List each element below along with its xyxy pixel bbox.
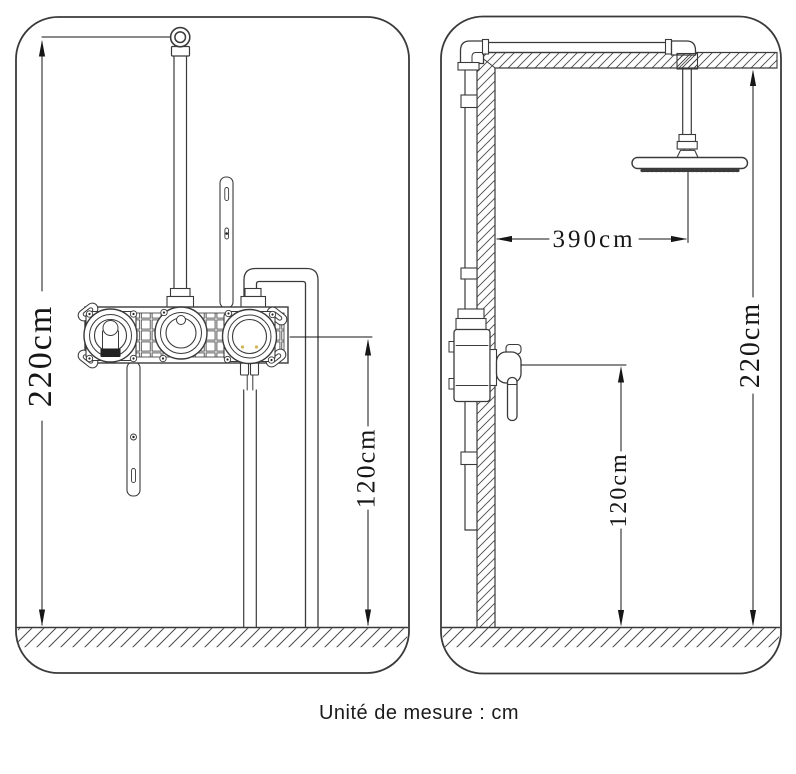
rough-in-valve-plate [76, 301, 289, 370]
diagram-root: 220cm [0, 0, 796, 774]
front-view-panel: 220cm [16, 17, 409, 673]
mounting-strap-lower [127, 362, 140, 496]
right-valve [223, 310, 277, 364]
side-floor-hatch [443, 628, 779, 647]
unit-note: Unité de mesure : cm [42, 702, 796, 725]
ceiling-section-hatch [476, 53, 777, 68]
dimension-label-side-valve-height: 120cm [606, 452, 632, 527]
left-valve [84, 309, 137, 362]
side-view-panel: 390cm 120cm [441, 17, 781, 674]
valve-handle-lever [508, 378, 518, 421]
dimension-label-front-valve-height: 120cm [352, 428, 381, 509]
dimension-label-side-height: 220cm [735, 302, 766, 388]
installation-diagram-canvas: 220cm [0, 0, 796, 746]
dimension-label-side-distance: 390cm [552, 226, 635, 253]
dimension-label-front-height: 220cm [22, 305, 59, 408]
mounting-strap-upper [220, 177, 233, 308]
front-floor-hatch [18, 628, 407, 647]
